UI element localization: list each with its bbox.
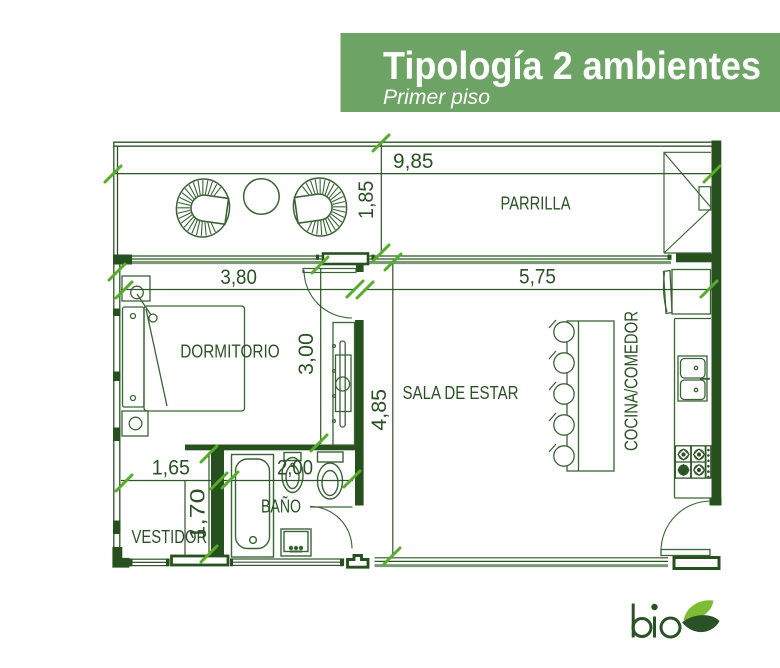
- svg-text:Primer piso: Primer piso: [383, 86, 490, 109]
- svg-text:DORMITORIO: DORMITORIO: [180, 340, 280, 361]
- svg-text:5,75: 5,75: [519, 265, 556, 289]
- svg-text:9,85: 9,85: [393, 149, 434, 173]
- svg-text:1,65: 1,65: [152, 456, 190, 480]
- svg-text:3,80: 3,80: [220, 265, 257, 289]
- svg-text:PARRILLA: PARRILLA: [501, 193, 572, 214]
- svg-text:Tipología 2 ambientes: Tipología 2 ambientes: [383, 45, 761, 88]
- svg-text:BAÑO: BAÑO: [261, 496, 301, 517]
- svg-text:COCINA/COMEDOR: COCINA/COMEDOR: [621, 311, 642, 451]
- svg-text:3,00: 3,00: [294, 333, 318, 375]
- svg-text:1,85: 1,85: [354, 181, 378, 219]
- svg-text:4,85: 4,85: [367, 389, 391, 431]
- svg-text:VESTIDOR: VESTIDOR: [132, 526, 208, 547]
- svg-text:2,00: 2,00: [277, 456, 313, 480]
- svg-text:SALA DE ESTAR: SALA DE ESTAR: [403, 382, 519, 403]
